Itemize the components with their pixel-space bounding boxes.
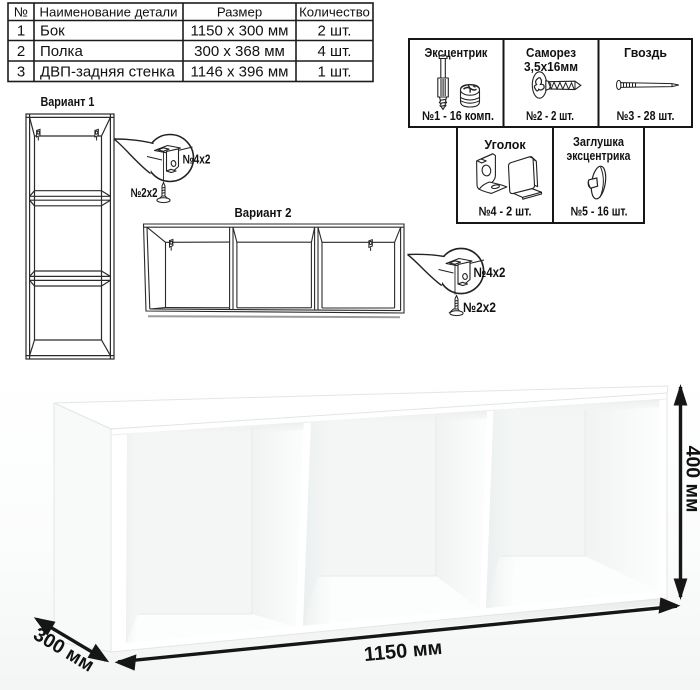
- svg-text:№4х2: №4х2: [473, 265, 505, 280]
- svg-text:Вариант 2: Вариант 2: [235, 205, 292, 220]
- svg-text:Бок: Бок: [40, 23, 65, 40]
- svg-text:Полка: Полка: [40, 43, 83, 60]
- svg-text:1 шт.: 1 шт.: [318, 64, 352, 81]
- svg-text:4 шт.: 4 шт.: [318, 43, 352, 60]
- svg-text:2: 2: [17, 43, 25, 60]
- svg-text:№1 - 16 комп.: №1 - 16 комп.: [422, 109, 494, 123]
- svg-text:Саморез: Саморез: [526, 46, 576, 60]
- svg-text:Гвоздь: Гвоздь: [624, 46, 667, 60]
- svg-text:Эксцентрик: Эксцентрик: [424, 46, 487, 60]
- svg-text:№2х2: №2х2: [131, 187, 158, 200]
- svg-text:№2х2: №2х2: [463, 300, 496, 315]
- svg-text:1150 x 300 мм: 1150 x 300 мм: [191, 23, 289, 40]
- svg-text:№4 - 2 шт.: №4 - 2 шт.: [478, 205, 531, 219]
- svg-text:№5 - 16 шт.: №5 - 16 шт.: [571, 206, 628, 219]
- svg-text:№2 - 2 шт.: №2 - 2 шт.: [526, 110, 574, 123]
- svg-text:Уголок: Уголок: [484, 138, 526, 152]
- svg-text:№3 - 28 шт.: №3 - 28 шт.: [617, 110, 675, 123]
- svg-text:3: 3: [17, 64, 25, 81]
- svg-text:3,5х16мм: 3,5х16мм: [524, 60, 578, 74]
- svg-text:Заглушка: Заглушка: [573, 135, 624, 149]
- svg-text:Наименование детали: Наименование детали: [40, 5, 178, 20]
- svg-text:№4х2: №4х2: [182, 154, 210, 167]
- svg-text:эксцентрика: эксцентрика: [566, 150, 630, 163]
- svg-text:300 x 368 мм: 300 x 368 мм: [194, 43, 285, 60]
- svg-text:1: 1: [17, 23, 25, 40]
- svg-text:400 мм: 400 мм: [681, 446, 700, 513]
- svg-text:№: №: [14, 5, 28, 20]
- svg-text:2 шт.: 2 шт.: [318, 23, 352, 40]
- svg-text:Размер: Размер: [217, 5, 262, 20]
- svg-text:Вариант 1: Вариант 1: [40, 94, 94, 109]
- svg-text:ДВП-задняя стенка: ДВП-задняя стенка: [40, 64, 175, 81]
- svg-text:1146 x 396 мм: 1146 x 396 мм: [191, 64, 289, 81]
- svg-text:Количество: Количество: [299, 5, 370, 20]
